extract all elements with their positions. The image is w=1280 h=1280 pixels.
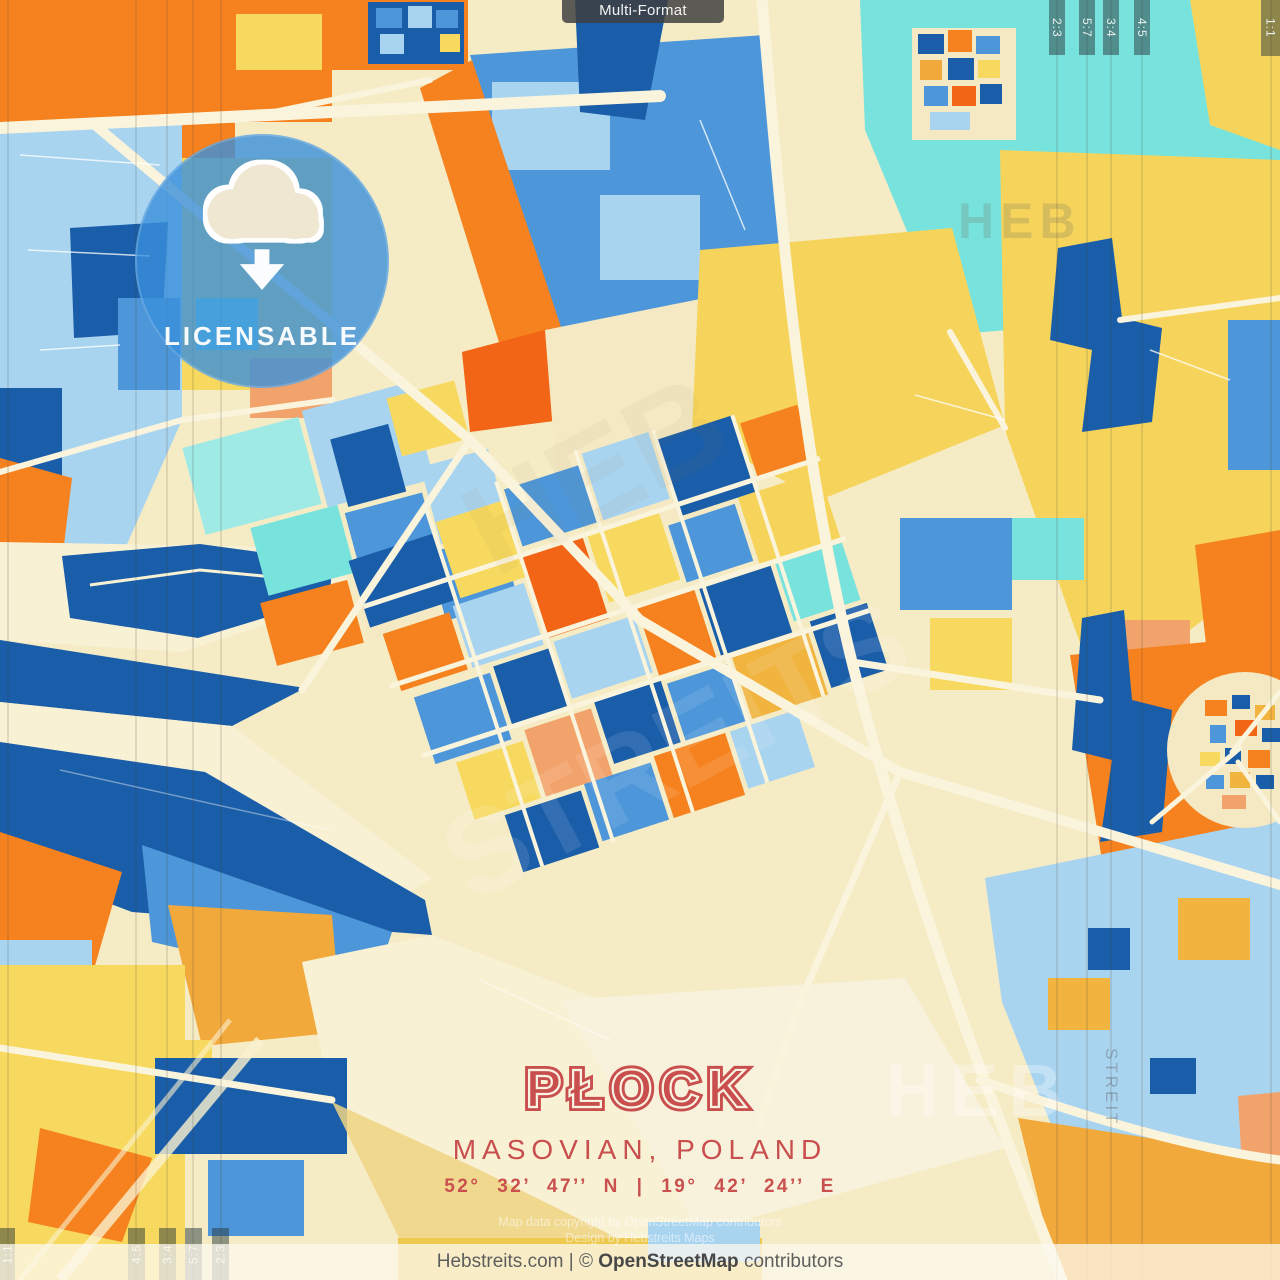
title-block: PŁOCK PŁOCK MASOVIAN, POLAND 52° 32’ 47’… (0, 1052, 1280, 1198)
watermark-heb-topright: HEB (958, 193, 1082, 249)
coordinates-line: 52° 32’ 47’’ N | 19° 42’ 24’’ E (0, 1176, 1280, 1198)
aspect-marker-4-5-top: 4:5 (1134, 0, 1150, 55)
map-poster: HEB HEB STREIT HEB STREITS Multi-Format … (0, 0, 1280, 1280)
attribution-footer: Hebstreits.com | © OpenStreetMap contrib… (0, 1244, 1280, 1280)
cloud-download-icon (188, 148, 336, 308)
city-title: PŁOCK PŁOCK (360, 1052, 920, 1126)
footer-site: Hebstreits.com | © (437, 1251, 598, 1272)
licensable-label: LICENSABLE (135, 321, 389, 352)
footer-osm-brand: OpenStreetMap (598, 1251, 738, 1272)
svg-text:PŁOCK: PŁOCK (526, 1059, 755, 1119)
aspect-marker-2-3-top: 2:3 (1049, 0, 1065, 55)
aspect-marker-1-1-top: 1:1 (1261, 0, 1280, 56)
aspect-marker-5-7-top: 5:7 (1079, 0, 1095, 55)
aspect-marker-3-4-top: 3:4 (1103, 0, 1119, 55)
footer-contributors: contributors (739, 1251, 844, 1272)
licensable-badge: LICENSABLE (135, 134, 389, 388)
region-subtitle: MASOVIAN, POLAND (0, 1134, 1280, 1166)
download-arrow-icon (240, 249, 284, 290)
multi-format-badge: Multi-Format (562, 0, 724, 23)
